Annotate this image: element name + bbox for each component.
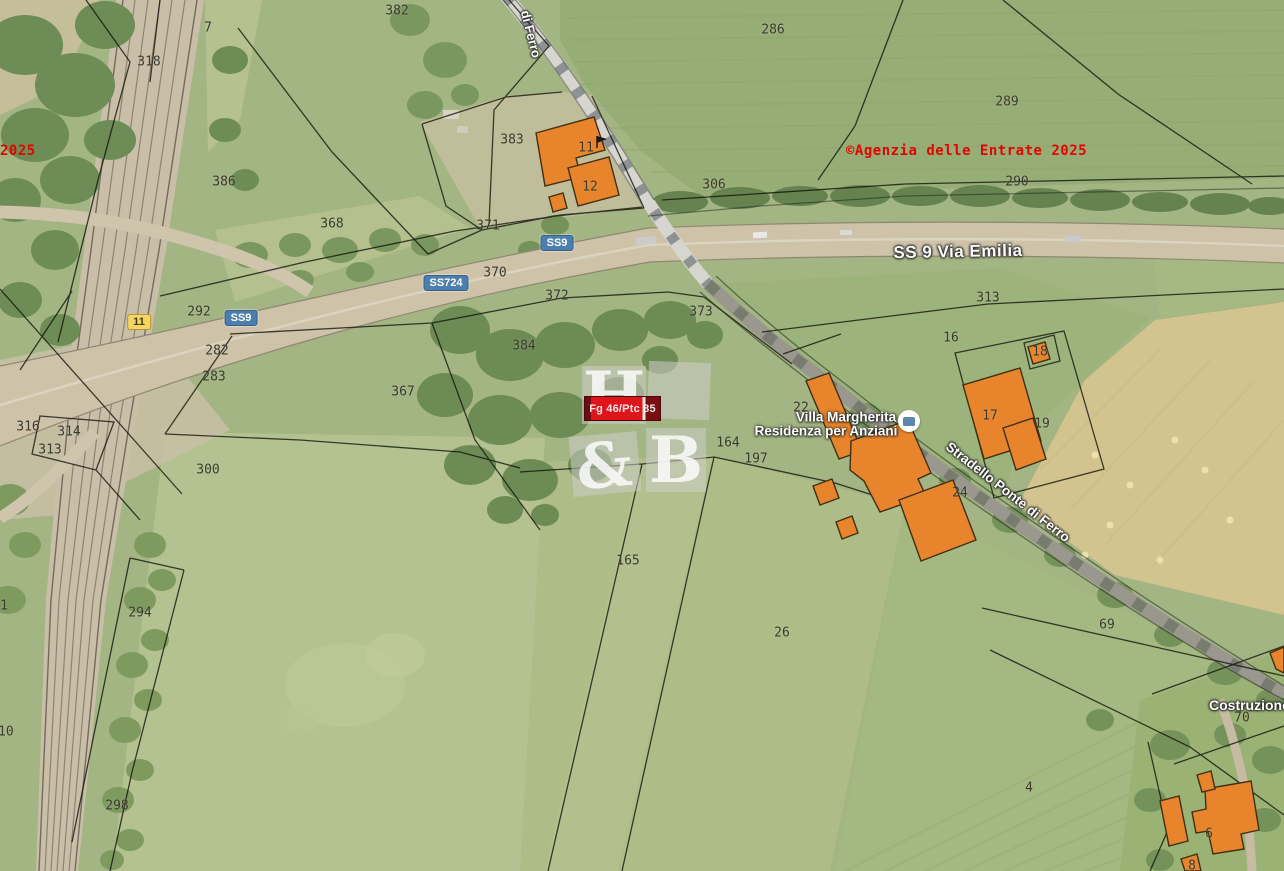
watermark-letter-b: B: [649, 429, 703, 493]
lodging-glyph-icon: [903, 417, 915, 426]
road-label-via-emilia: SS 9 Via Emilia: [893, 241, 1022, 263]
road-label-costruzione: Costruzione: [1209, 697, 1284, 713]
parcel-highlight-banner: Fg 46/Ptc 85: [584, 396, 661, 421]
place-icon[interactable]: [898, 410, 920, 432]
map-canvas[interactable]: 3827318386368383111230637137037237338436…: [0, 0, 1284, 871]
watermark-letter-amp: &: [573, 433, 634, 500]
attribution-text-partial: 2025: [0, 143, 36, 159]
place-name-line1: Villa Margherita: [796, 410, 896, 425]
satellite-base: [0, 0, 1284, 871]
attribution-text: ©Agenzia delle Entrate 2025: [846, 143, 1087, 159]
place-name-line2: Residenza per Anziani: [755, 424, 898, 439]
